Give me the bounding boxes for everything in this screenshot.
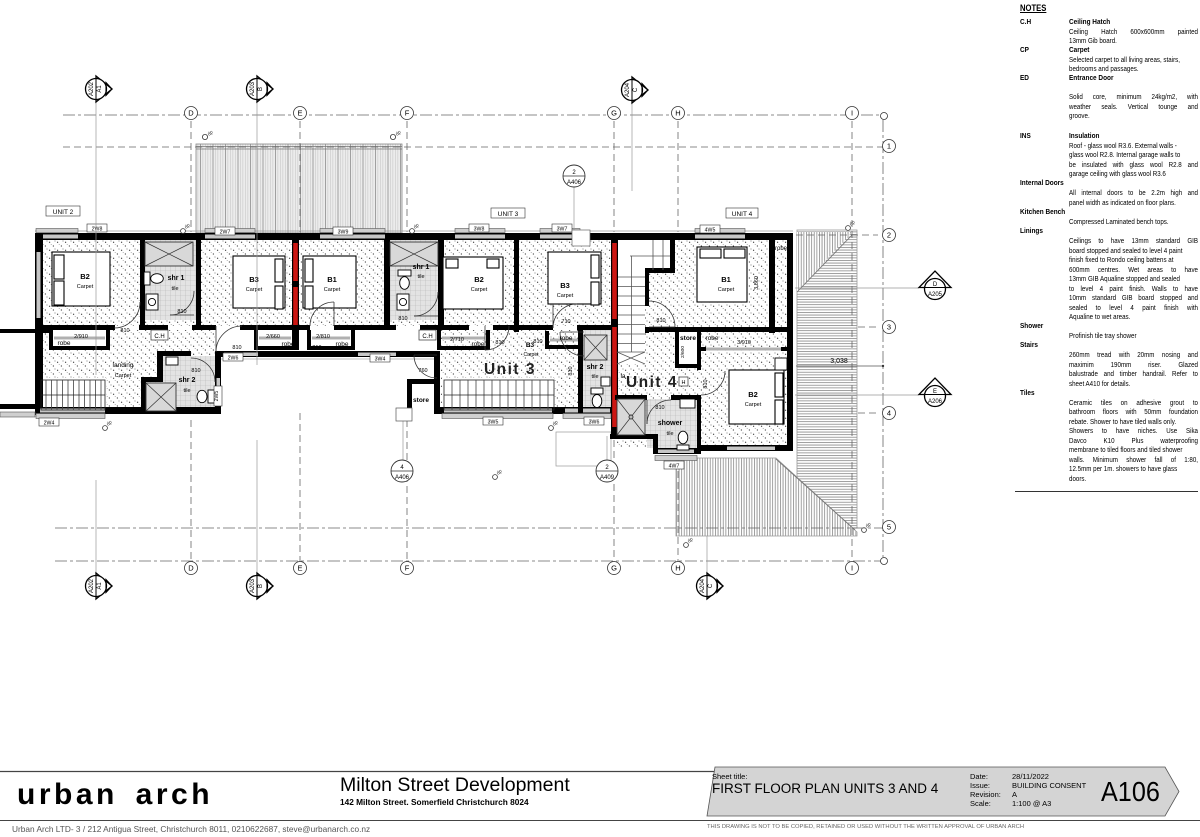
svg-text:810: 810 bbox=[177, 309, 186, 315]
svg-text:2W5: 2W5 bbox=[214, 391, 220, 402]
svg-text:Carpet: Carpet bbox=[718, 287, 735, 293]
svg-text:shr 2: shr 2 bbox=[587, 364, 604, 371]
svg-text:3: 3 bbox=[887, 323, 891, 332]
svg-text:3W6: 3W6 bbox=[589, 419, 600, 425]
svg-text:robe: robe bbox=[281, 341, 294, 348]
svg-text:G: G bbox=[611, 109, 617, 118]
svg-text:C: C bbox=[633, 87, 639, 92]
svg-text:Carpet: Carpet bbox=[471, 287, 488, 293]
svg-text:C.H: C.H bbox=[422, 334, 432, 340]
svg-text:E: E bbox=[933, 389, 937, 395]
svg-text:810: 810 bbox=[232, 345, 241, 351]
svg-text:I: I bbox=[851, 564, 853, 573]
svg-text:810: 810 bbox=[656, 318, 665, 324]
svg-text:UNIT 2: UNIT 2 bbox=[53, 209, 74, 216]
svg-text:Carpet: Carpet bbox=[745, 402, 762, 408]
svg-text:810: 810 bbox=[120, 328, 129, 334]
svg-text:810: 810 bbox=[655, 405, 664, 411]
svg-text:D: D bbox=[188, 109, 194, 118]
svg-text:Carpet: Carpet bbox=[324, 287, 341, 293]
svg-text:2: 2 bbox=[887, 231, 891, 240]
svg-text:A1: A1 bbox=[97, 582, 103, 590]
svg-text:B: B bbox=[258, 87, 264, 91]
svg-text:B2: B2 bbox=[80, 272, 90, 281]
svg-text:C: C bbox=[708, 583, 714, 588]
svg-text:B1: B1 bbox=[721, 275, 731, 284]
svg-text:store: store bbox=[680, 335, 696, 342]
svg-text:D: D bbox=[933, 282, 938, 288]
svg-text:B3: B3 bbox=[560, 281, 570, 290]
svg-text:2/810: 2/810 bbox=[316, 334, 330, 340]
svg-text:3/910: 3/910 bbox=[737, 340, 751, 346]
svg-text:3W8: 3W8 bbox=[474, 226, 485, 232]
svg-text:robe: robe bbox=[775, 246, 788, 252]
svg-text:2W6: 2W6 bbox=[228, 355, 239, 361]
svg-text:810: 810 bbox=[533, 339, 542, 345]
svg-text:Carpet: Carpet bbox=[115, 373, 132, 379]
svg-text:tile: tile bbox=[666, 431, 673, 437]
svg-text:810: 810 bbox=[398, 316, 407, 322]
svg-text:A204: A204 bbox=[625, 82, 631, 97]
svg-text:810: 810 bbox=[312, 345, 321, 351]
svg-text:robe: robe bbox=[471, 341, 484, 348]
svg-text:D: D bbox=[188, 564, 194, 573]
svg-text:I: I bbox=[851, 109, 853, 118]
svg-text:1: 1 bbox=[887, 142, 891, 151]
svg-text:tile: tile bbox=[591, 374, 598, 380]
svg-text:shr 1: shr 1 bbox=[413, 264, 430, 271]
svg-text:4W7: 4W7 bbox=[669, 463, 680, 469]
svg-text:A406: A406 bbox=[567, 180, 582, 186]
svg-text:H: H bbox=[675, 564, 680, 573]
svg-text:3W9: 3W9 bbox=[338, 229, 349, 235]
svg-text:Carpet: Carpet bbox=[557, 293, 574, 299]
svg-text:store: store bbox=[413, 397, 429, 404]
svg-text:2/710: 2/710 bbox=[450, 337, 464, 343]
svg-text:F: F bbox=[405, 564, 410, 573]
svg-text:2/660: 2/660 bbox=[266, 334, 280, 340]
svg-text:H: H bbox=[682, 380, 686, 386]
svg-text:A205: A205 bbox=[928, 292, 943, 298]
svg-text:robe: robe bbox=[705, 335, 718, 342]
svg-text:tile: tile bbox=[171, 286, 178, 292]
svg-text:A203: A203 bbox=[250, 81, 256, 96]
svg-text:5: 5 bbox=[887, 523, 891, 532]
svg-text:Carpet: Carpet bbox=[246, 287, 263, 293]
svg-text:Unit 4: Unit 4 bbox=[626, 374, 678, 391]
svg-text:Unit 3: Unit 3 bbox=[484, 361, 536, 378]
svg-text:810: 810 bbox=[568, 366, 574, 375]
svg-text:Carpet: Carpet bbox=[77, 284, 94, 290]
svg-text:G: G bbox=[611, 564, 617, 573]
svg-text:UNIT 4: UNIT 4 bbox=[732, 211, 753, 218]
svg-text:810: 810 bbox=[703, 379, 709, 388]
svg-text:B: B bbox=[258, 584, 264, 588]
svg-text:E: E bbox=[297, 109, 302, 118]
svg-text:B2: B2 bbox=[748, 390, 758, 399]
svg-text:shower: shower bbox=[658, 420, 683, 427]
svg-text:landing: landing bbox=[113, 362, 134, 369]
svg-text:3,038: 3,038 bbox=[830, 358, 848, 365]
svg-text:3W7: 3W7 bbox=[557, 226, 568, 232]
svg-text:B2: B2 bbox=[474, 275, 484, 284]
svg-text:2W4: 2W4 bbox=[44, 420, 55, 426]
svg-text:shr 2: shr 2 bbox=[179, 377, 196, 384]
svg-text:E: E bbox=[297, 564, 302, 573]
svg-text:A204: A204 bbox=[700, 578, 706, 593]
svg-text:810: 810 bbox=[191, 368, 200, 374]
svg-text:A202: A202 bbox=[89, 578, 95, 593]
svg-text:B1: B1 bbox=[327, 275, 337, 284]
svg-text:robe: robe bbox=[57, 340, 70, 347]
svg-text:3W5: 3W5 bbox=[488, 419, 499, 425]
svg-text:Carpet: Carpet bbox=[523, 352, 539, 358]
svg-text:A206: A206 bbox=[928, 399, 943, 405]
svg-text:710: 710 bbox=[561, 319, 570, 325]
svg-text:2/600: 2/600 bbox=[680, 346, 686, 358]
svg-text:3W4: 3W4 bbox=[375, 356, 386, 362]
svg-text:C.H: C.H bbox=[154, 334, 164, 340]
svg-text:4W5: 4W5 bbox=[705, 227, 716, 233]
svg-text:A202: A202 bbox=[89, 81, 95, 96]
svg-text:tile: tile bbox=[183, 388, 190, 394]
svg-text:2/910: 2/910 bbox=[74, 334, 88, 340]
svg-text:F: F bbox=[405, 109, 410, 118]
svg-text:3,860: 3,860 bbox=[754, 276, 760, 290]
svg-text:A1: A1 bbox=[97, 85, 103, 93]
svg-text:robe: robe bbox=[559, 335, 572, 342]
svg-text:4: 4 bbox=[887, 409, 891, 418]
svg-text:A203: A203 bbox=[250, 578, 256, 593]
svg-text:760: 760 bbox=[418, 368, 427, 374]
svg-text:2W8: 2W8 bbox=[92, 226, 103, 232]
svg-text:810: 810 bbox=[495, 340, 504, 346]
svg-text:2W7: 2W7 bbox=[220, 229, 231, 235]
svg-text:H: H bbox=[675, 109, 680, 118]
svg-text:A406: A406 bbox=[395, 475, 410, 481]
svg-text:B3: B3 bbox=[249, 275, 259, 284]
svg-text:tile: tile bbox=[417, 274, 424, 280]
svg-text:A409: A409 bbox=[600, 475, 615, 481]
svg-text:shr 1: shr 1 bbox=[168, 275, 185, 282]
svg-text:robe: robe bbox=[335, 341, 348, 348]
svg-text:UNIT 3: UNIT 3 bbox=[498, 211, 519, 218]
